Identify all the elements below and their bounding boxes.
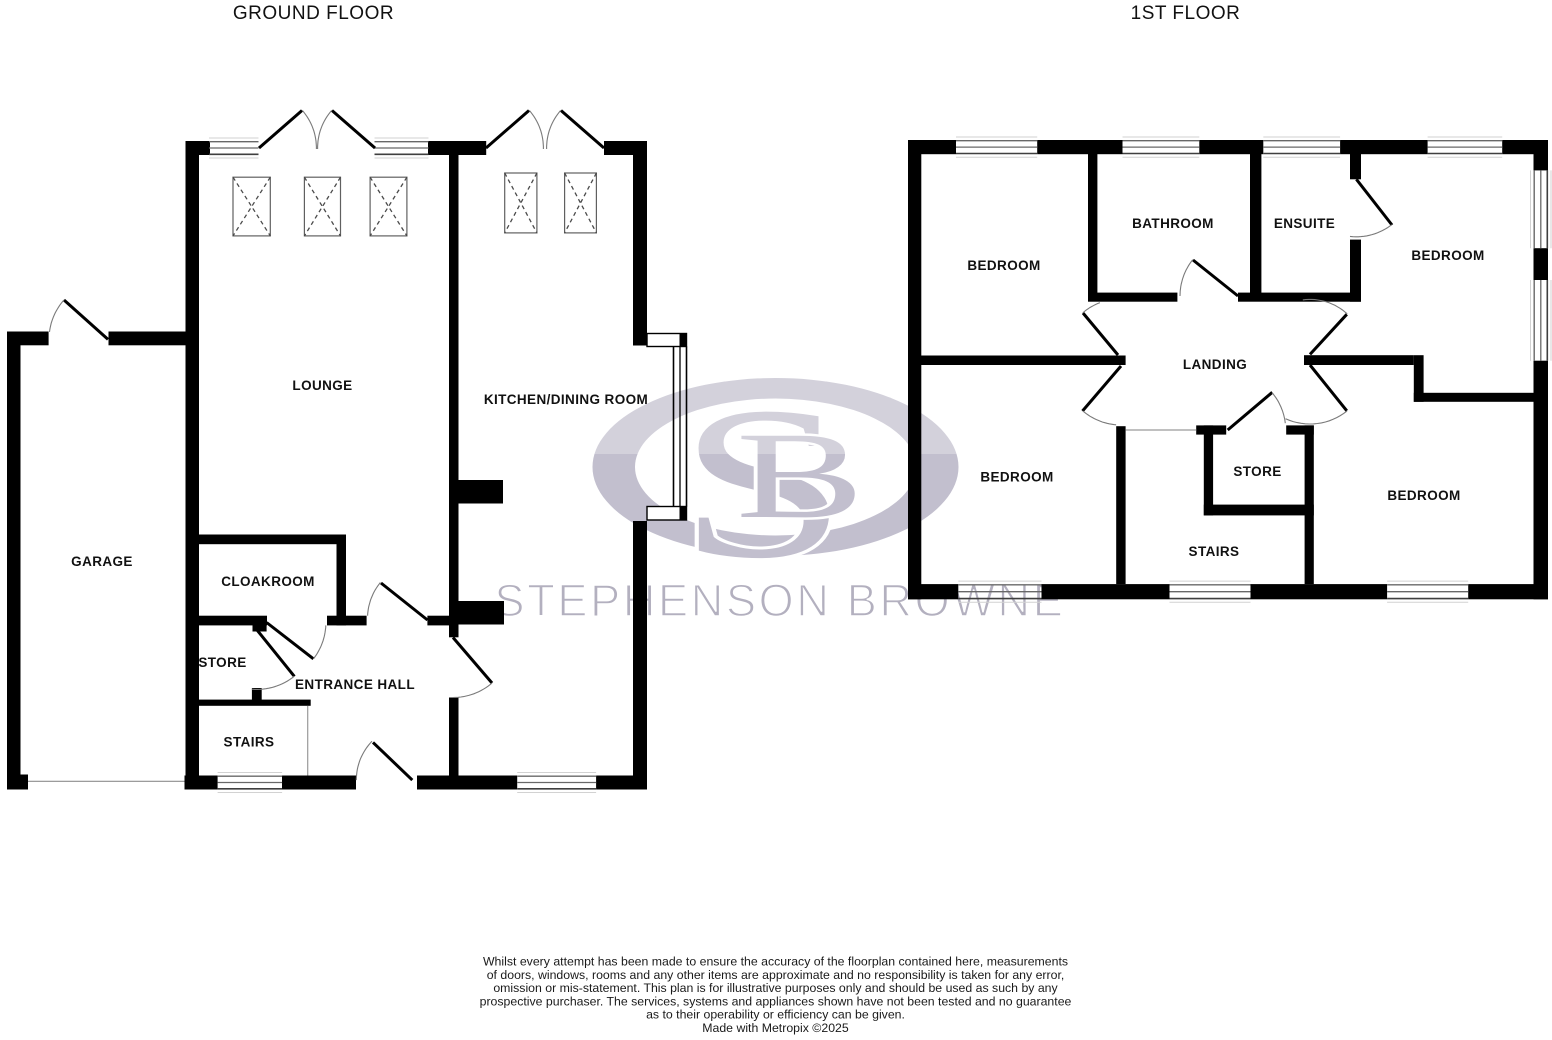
svg-text:BEDROOM: BEDROOM bbox=[967, 258, 1040, 273]
svg-text:Whilst every attempt has been: Whilst every attempt has been made to en… bbox=[483, 955, 1068, 969]
svg-text:STORE: STORE bbox=[198, 655, 246, 670]
svg-text:LOUNGE: LOUNGE bbox=[292, 378, 352, 393]
svg-text:LANDING: LANDING bbox=[1183, 357, 1247, 372]
svg-text:CLOAKROOM: CLOAKROOM bbox=[221, 574, 315, 589]
svg-text:omission or mis-statement. Thi: omission or mis-statement. This plan is … bbox=[493, 981, 1058, 995]
svg-text:of doors, windows, rooms and a: of doors, windows, rooms and any other i… bbox=[487, 968, 1065, 982]
svg-text:ENTRANCE HALL: ENTRANCE HALL bbox=[295, 677, 415, 692]
svg-text:STEPHENSON BROWNE: STEPHENSON BROWNE bbox=[495, 575, 1066, 626]
svg-text:ENSUITE: ENSUITE bbox=[1274, 216, 1335, 231]
svg-text:STORE: STORE bbox=[1233, 464, 1281, 479]
svg-text:BEDROOM: BEDROOM bbox=[1411, 248, 1484, 263]
svg-text:prospective purchaser. The ser: prospective purchaser. The services, sys… bbox=[480, 994, 1072, 1008]
svg-text:as to their operability or eff: as to their operability or efficiency ca… bbox=[646, 1008, 905, 1022]
svg-text:BEDROOM: BEDROOM bbox=[1387, 488, 1460, 503]
svg-text:BATHROOM: BATHROOM bbox=[1132, 216, 1214, 231]
svg-text:GROUND FLOOR: GROUND FLOOR bbox=[233, 3, 394, 24]
svg-text:STAIRS: STAIRS bbox=[224, 735, 275, 750]
svg-text:Made with Metropix ©2025: Made with Metropix ©2025 bbox=[702, 1021, 849, 1035]
svg-text:KITCHEN/DINING ROOM: KITCHEN/DINING ROOM bbox=[484, 392, 648, 407]
svg-text:STAIRS: STAIRS bbox=[1189, 544, 1240, 559]
svg-text:GARAGE: GARAGE bbox=[71, 554, 133, 569]
svg-text:BEDROOM: BEDROOM bbox=[980, 470, 1053, 485]
svg-text:1ST FLOOR: 1ST FLOOR bbox=[1131, 3, 1241, 24]
